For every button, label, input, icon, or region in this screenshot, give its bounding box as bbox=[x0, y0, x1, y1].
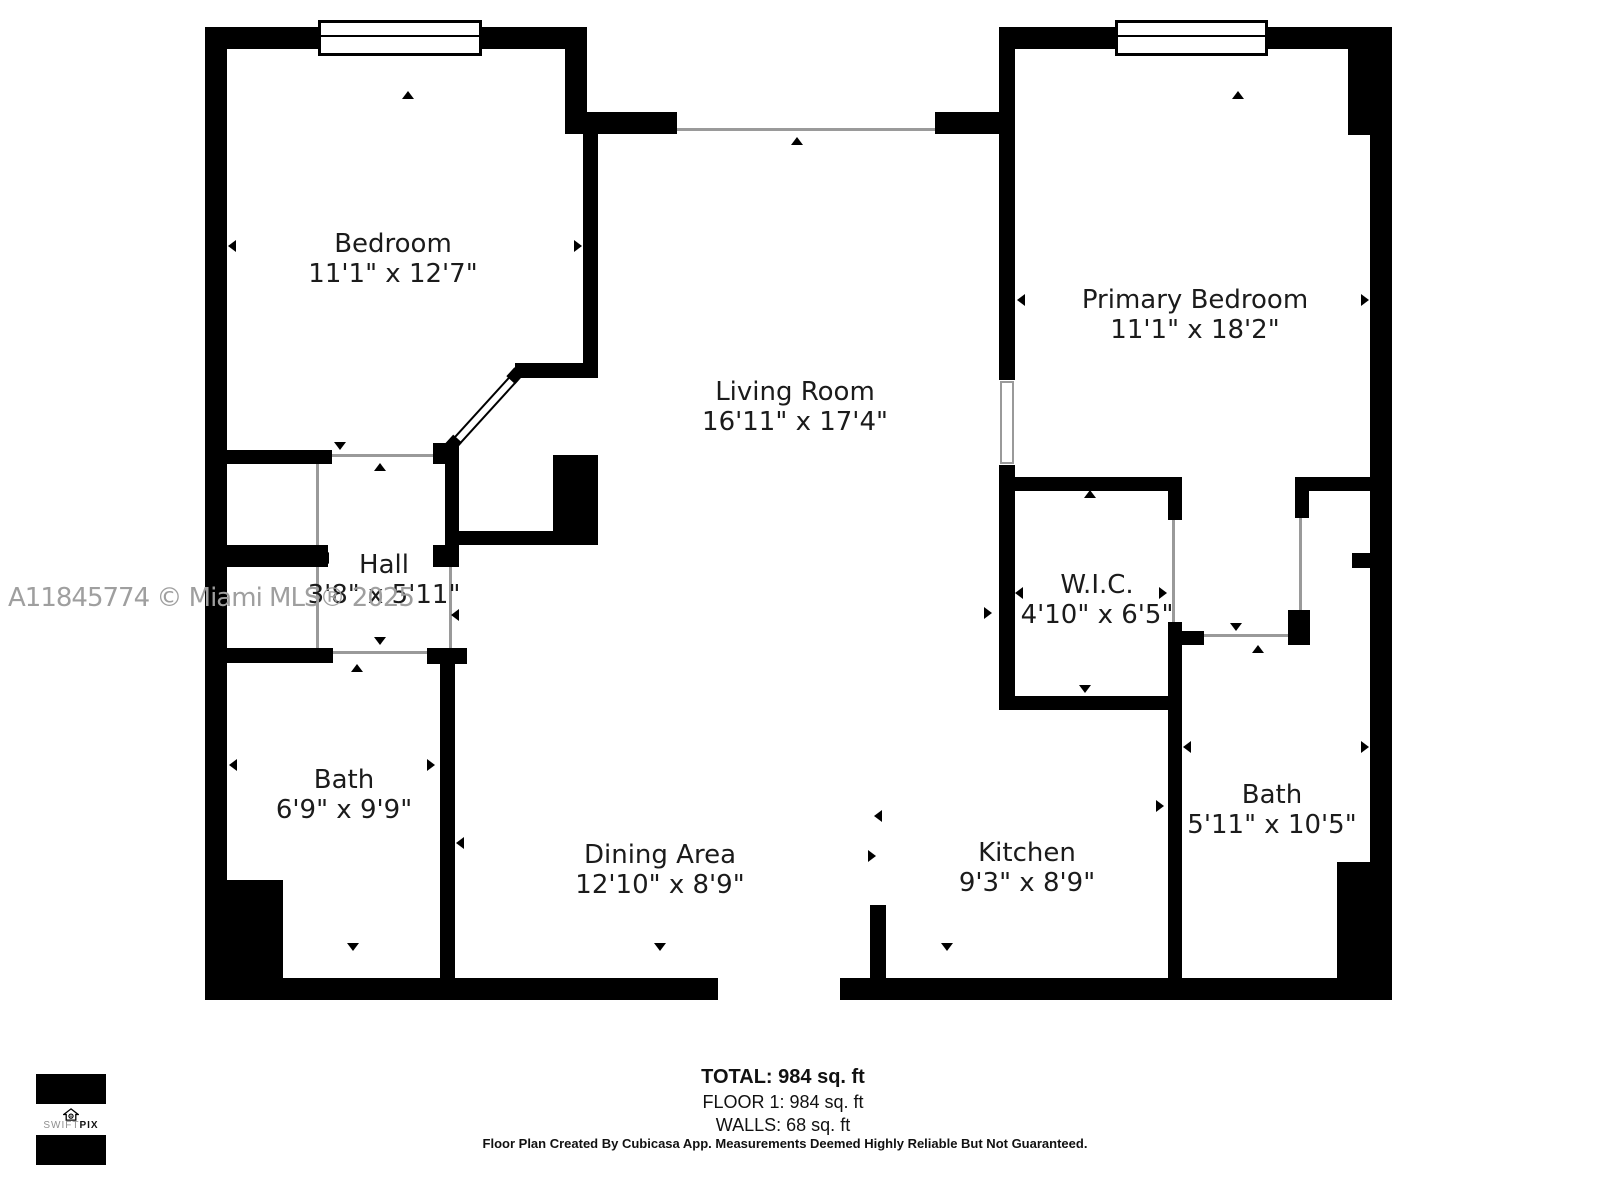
room-name: Kitchen bbox=[959, 838, 1095, 868]
wall-bath-right-top bbox=[1182, 631, 1204, 645]
bedroom-door-diagonal bbox=[451, 374, 518, 447]
room-label-primary-bedroom: Primary Bedroom 11'1" x 18'2" bbox=[1082, 285, 1308, 345]
room-label-bath-right: Bath 5'11" x 10'5" bbox=[1187, 780, 1356, 840]
wall-exterior-left bbox=[205, 27, 227, 1000]
arrow-left-icon bbox=[456, 837, 464, 849]
arrow-left-icon bbox=[1183, 741, 1191, 753]
arrow-up-icon bbox=[1084, 490, 1096, 498]
room-label-kitchen: Kitchen 9'3" x 8'9" bbox=[959, 838, 1095, 898]
room-dims: 16'11" x 17'4" bbox=[702, 407, 888, 437]
wall-primary-left-upper bbox=[999, 27, 1015, 380]
arrow-down-icon bbox=[374, 637, 386, 645]
room-label-dining-area: Dining Area 12'10" x 8'9" bbox=[575, 840, 744, 900]
wall-bath-left-right bbox=[440, 648, 455, 978]
arrow-up-icon bbox=[1252, 645, 1264, 653]
wall-bedroom-door-header bbox=[515, 363, 598, 378]
logo-wordmark: SWIFTPIX bbox=[43, 1121, 98, 1131]
wall-closet-top bbox=[1295, 477, 1370, 491]
arrow-right-icon bbox=[427, 759, 435, 771]
wall-corner-block-ne bbox=[1348, 27, 1392, 135]
bedroom-hall-opening bbox=[332, 454, 433, 457]
arrow-right-icon bbox=[574, 240, 582, 252]
wall-living-west-block bbox=[553, 455, 598, 545]
room-dims: 4'10" x 6'5" bbox=[1021, 600, 1174, 630]
arrow-right-icon bbox=[1361, 741, 1369, 753]
arrow-up-icon bbox=[1232, 91, 1244, 99]
wall-bath-left-top bbox=[227, 648, 333, 663]
arrow-down-icon bbox=[1079, 685, 1091, 693]
room-name: Dining Area bbox=[575, 840, 744, 870]
arrow-up-icon bbox=[374, 463, 386, 471]
wall-wic-right-upper bbox=[1168, 477, 1182, 520]
arrow-left-icon bbox=[1017, 294, 1025, 306]
total-area: TOTAL: 984 sq. ft bbox=[483, 1066, 1083, 1089]
arrow-down-icon bbox=[941, 943, 953, 951]
wall-closet-divider bbox=[227, 545, 316, 567]
arrow-left-icon bbox=[228, 240, 236, 252]
wall-right-notch bbox=[1352, 553, 1370, 568]
swiftpix-logo: SWIFTPIX bbox=[36, 1074, 106, 1165]
room-name: Bedroom bbox=[308, 229, 477, 259]
bath-right-door-opening bbox=[1204, 634, 1288, 637]
wall-exterior-right bbox=[1370, 27, 1392, 1000]
arrow-right-icon bbox=[1156, 800, 1164, 812]
wall-living-top-left bbox=[565, 112, 677, 134]
room-dims: 11'1" x 12'7" bbox=[308, 259, 477, 289]
arrow-down-icon bbox=[334, 442, 346, 450]
arrow-down-icon bbox=[654, 943, 666, 951]
room-dims: 5'11" x 10'5" bbox=[1187, 810, 1356, 840]
room-dims: 6'9" x 9'9" bbox=[276, 795, 412, 825]
wall-bedroom-right-lower bbox=[583, 134, 598, 364]
room-name: Living Room bbox=[702, 377, 888, 407]
arrow-up-icon bbox=[402, 91, 414, 99]
wall-closet-corner bbox=[1288, 610, 1310, 645]
arrow-right-icon bbox=[1361, 294, 1369, 306]
opening-living-balcony bbox=[677, 128, 935, 131]
wall-exterior-bottom-left bbox=[205, 978, 718, 1000]
room-name: Primary Bedroom bbox=[1082, 285, 1308, 315]
room-dims: 9'3" x 8'9" bbox=[959, 868, 1095, 898]
window-bedroom bbox=[318, 20, 482, 56]
wall-bath-left-sw-block bbox=[227, 880, 283, 978]
floor-area: FLOOR 1: 984 sq. ft bbox=[483, 1092, 1083, 1113]
wall-bath-right-left bbox=[1168, 622, 1182, 978]
arrow-right-icon bbox=[868, 850, 876, 862]
wall-hall-nw-corner bbox=[433, 443, 459, 464]
wall-wic-bottom bbox=[999, 696, 1182, 710]
wall-exterior-bottom-right bbox=[840, 978, 1392, 1000]
room-name: Bath bbox=[276, 765, 412, 795]
room-label-bedroom: Bedroom 11'1" x 12'7" bbox=[308, 229, 477, 289]
arrow-up-icon bbox=[351, 664, 363, 672]
closet-door-opening bbox=[1299, 518, 1302, 610]
wall-kitchen-divider bbox=[870, 905, 886, 978]
walls-area: WALLS: 68 sq. ft bbox=[483, 1115, 1083, 1136]
wall-bedroom-right-upper bbox=[565, 27, 587, 120]
floor-plan: A11845774 © Miami MLS® 2025 bbox=[0, 0, 1600, 1200]
arrow-down-icon bbox=[1230, 623, 1242, 631]
wall-closet-left-upper bbox=[1295, 491, 1309, 518]
wall-bath-right-se-block bbox=[1337, 862, 1392, 978]
wall-bedroom-bottom bbox=[227, 450, 332, 464]
room-name: W.I.C. bbox=[1021, 570, 1174, 600]
arrow-left-icon bbox=[229, 759, 237, 771]
arrow-left-icon bbox=[451, 609, 459, 621]
logo-bottom-block bbox=[36, 1135, 106, 1165]
room-label-bath-left: Bath 6'9" x 9'9" bbox=[276, 765, 412, 825]
room-name: Hall bbox=[308, 550, 461, 580]
mls-watermark: A11845774 © Miami MLS® 2025 bbox=[8, 583, 414, 613]
arrow-left-icon bbox=[874, 810, 882, 822]
disclaimer-text: Floor Plan Created By Cubicasa App. Meas… bbox=[0, 1136, 1570, 1151]
primary-door-opening bbox=[1000, 381, 1014, 464]
arrow-up-icon bbox=[791, 137, 803, 145]
arrow-right-icon bbox=[984, 607, 992, 619]
room-label-wic: W.I.C. 4'10" x 6'5" bbox=[1021, 570, 1174, 630]
wall-wic-left bbox=[999, 465, 1015, 710]
logo-top-block bbox=[36, 1074, 106, 1104]
arrow-down-icon bbox=[347, 943, 359, 951]
room-dims: 11'1" x 18'2" bbox=[1082, 315, 1308, 345]
bath-left-door-opening bbox=[333, 651, 427, 654]
logo-brand: SWIFTPIX bbox=[36, 1104, 106, 1135]
wall-wic-top bbox=[1013, 477, 1182, 491]
window-primary-bedroom bbox=[1115, 20, 1268, 56]
area-summary: TOTAL: 984 sq. ft FLOOR 1: 984 sq. ft WA… bbox=[483, 1066, 1083, 1138]
room-label-living-room: Living Room 16'11" x 17'4" bbox=[702, 377, 888, 437]
room-name: Bath bbox=[1187, 780, 1356, 810]
room-dims: 12'10" x 8'9" bbox=[575, 870, 744, 900]
